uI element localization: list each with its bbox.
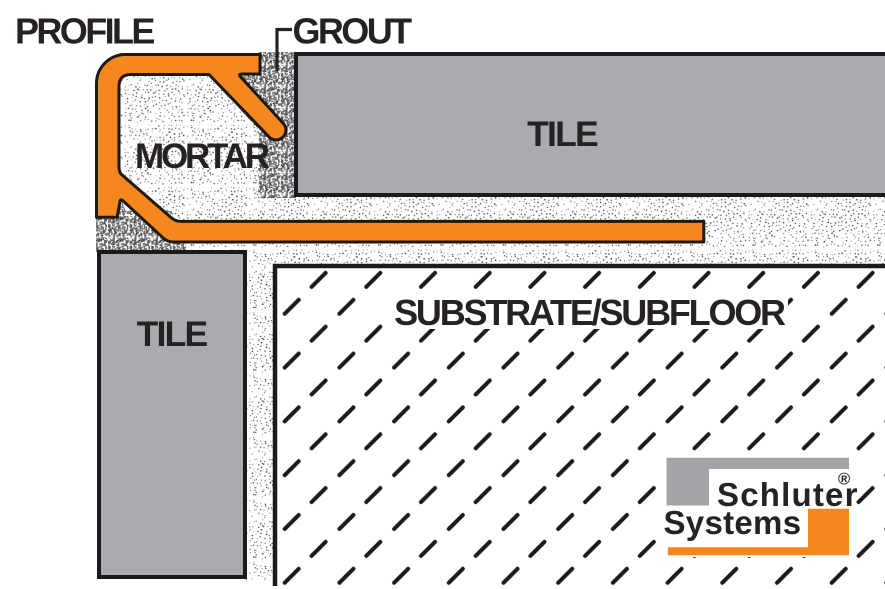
svg-text:GROUT: GROUT [293,11,413,52]
svg-text:SUBSTRATE/SUBFLOOR: SUBSTRATE/SUBFLOOR [394,292,786,333]
svg-text:Systems: Systems [664,504,802,541]
svg-text:PROFILE: PROFILE [15,11,154,52]
svg-text:®: ® [838,471,850,489]
svg-text:MORTAR: MORTAR [135,137,270,176]
svg-text:TILE: TILE [137,314,208,354]
svg-text:TILE: TILE [527,114,598,154]
